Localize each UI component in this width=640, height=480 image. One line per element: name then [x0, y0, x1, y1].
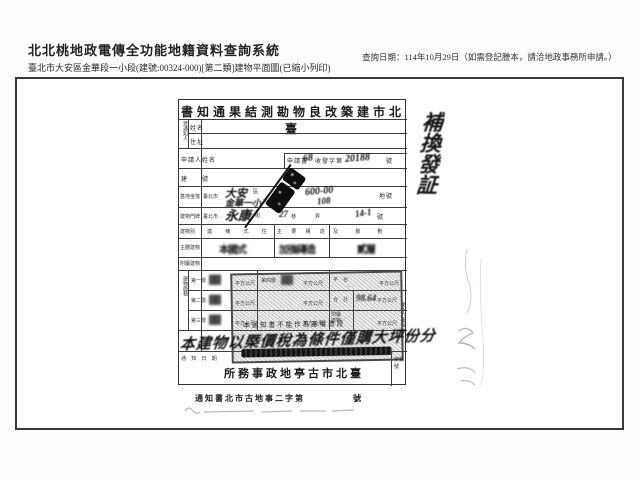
- margin-handwriting-note: 補換發証: [404, 111, 447, 261]
- applicant-label: 申請人姓名: [181, 155, 216, 164]
- door-city-label: 臺北市: [203, 213, 218, 220]
- structure-handwriting: 加強磚造: [279, 241, 315, 256]
- door-label: 建物門牌: [180, 213, 200, 220]
- query-date: 查詢日期：114年10月29日（如需登記謄本，請洽地政事務所申請。）: [362, 51, 617, 63]
- grid-line: [284, 153, 285, 168]
- building-no-label: 建 號: [181, 174, 209, 183]
- grid-line: [179, 238, 407, 239]
- grid-line: [179, 148, 407, 149]
- site-label: 基地坐落: [180, 193, 200, 200]
- district-suffix: 區: [253, 188, 258, 195]
- recipient-label: 受通知人: [180, 121, 188, 147]
- house-no-suffix: 號: [377, 212, 384, 221]
- office-name-rtl: 所務事政地亭古市北臺: [199, 365, 389, 381]
- receipt-mid-label: 收發字第: [315, 156, 343, 165]
- notice-date-label: 通 知 日 期: [181, 355, 219, 362]
- receipt-prefix-handwriting: 68: [302, 153, 313, 165]
- floor3-area: ▓▓: [209, 314, 220, 324]
- floor1-label: 第一層: [191, 277, 206, 284]
- pencil-scribble: [182, 403, 382, 423]
- corner-cell-label: 字第號: [394, 356, 405, 370]
- house-no-handwriting: 14-1: [354, 207, 372, 219]
- query-system-page: 北北桃地政電傳全功能地籍資料查詢系統 查詢日期：114年10月29日（如需登記謄…: [0, 0, 640, 480]
- name-label: 姓名: [190, 123, 204, 132]
- grid-line: [188, 119, 189, 148]
- receipt-no-suffix: 號: [386, 156, 393, 165]
- type-label: 建物別: [180, 228, 195, 235]
- stray-marks: [447, 229, 497, 409]
- main-building-label: 主體建物: [180, 244, 200, 251]
- grid-line: [179, 119, 407, 120]
- grid-line: [329, 224, 330, 257]
- lot-suffix-label: 地號: [379, 191, 393, 200]
- floor2-area: ▓▓: [209, 294, 220, 304]
- area-label: 建物面積: [180, 276, 188, 326]
- grid-line: [179, 257, 407, 258]
- attached-building-label: 附屬建物: [180, 260, 200, 267]
- grid-line: [188, 270, 189, 330]
- parcel-info: 臺北市大安區金華段一小段(建號:00324-000)[第二類]建物平面圖(已縮小…: [28, 61, 330, 74]
- floor1-area: ▓▓: [209, 274, 220, 284]
- floors-handwriting: 貳層: [357, 241, 375, 256]
- city-label: 臺北市: [203, 193, 218, 200]
- floors-header: 及 層 數: [333, 228, 391, 235]
- receipt-number-handwriting: 20188: [345, 152, 371, 165]
- grid-line: [188, 133, 407, 134]
- floor3-label: 第三層: [191, 317, 206, 324]
- alley-suffix: 弄: [315, 213, 320, 220]
- lot-number2-handwriting: 108: [317, 195, 331, 206]
- style-handwriting: 本國式: [219, 241, 246, 256]
- scan-viewport: 書知通果結測勘物良改築建市北臺: [15, 77, 624, 430]
- floor2-label: 第二層: [191, 297, 206, 304]
- form-title-rtl: 書知通果結測勘物良改築建市北臺: [179, 103, 407, 137]
- system-title: 北北桃地政電傳全功能地籍資料查詢系統: [28, 40, 280, 59]
- address-label: 住址: [190, 137, 204, 146]
